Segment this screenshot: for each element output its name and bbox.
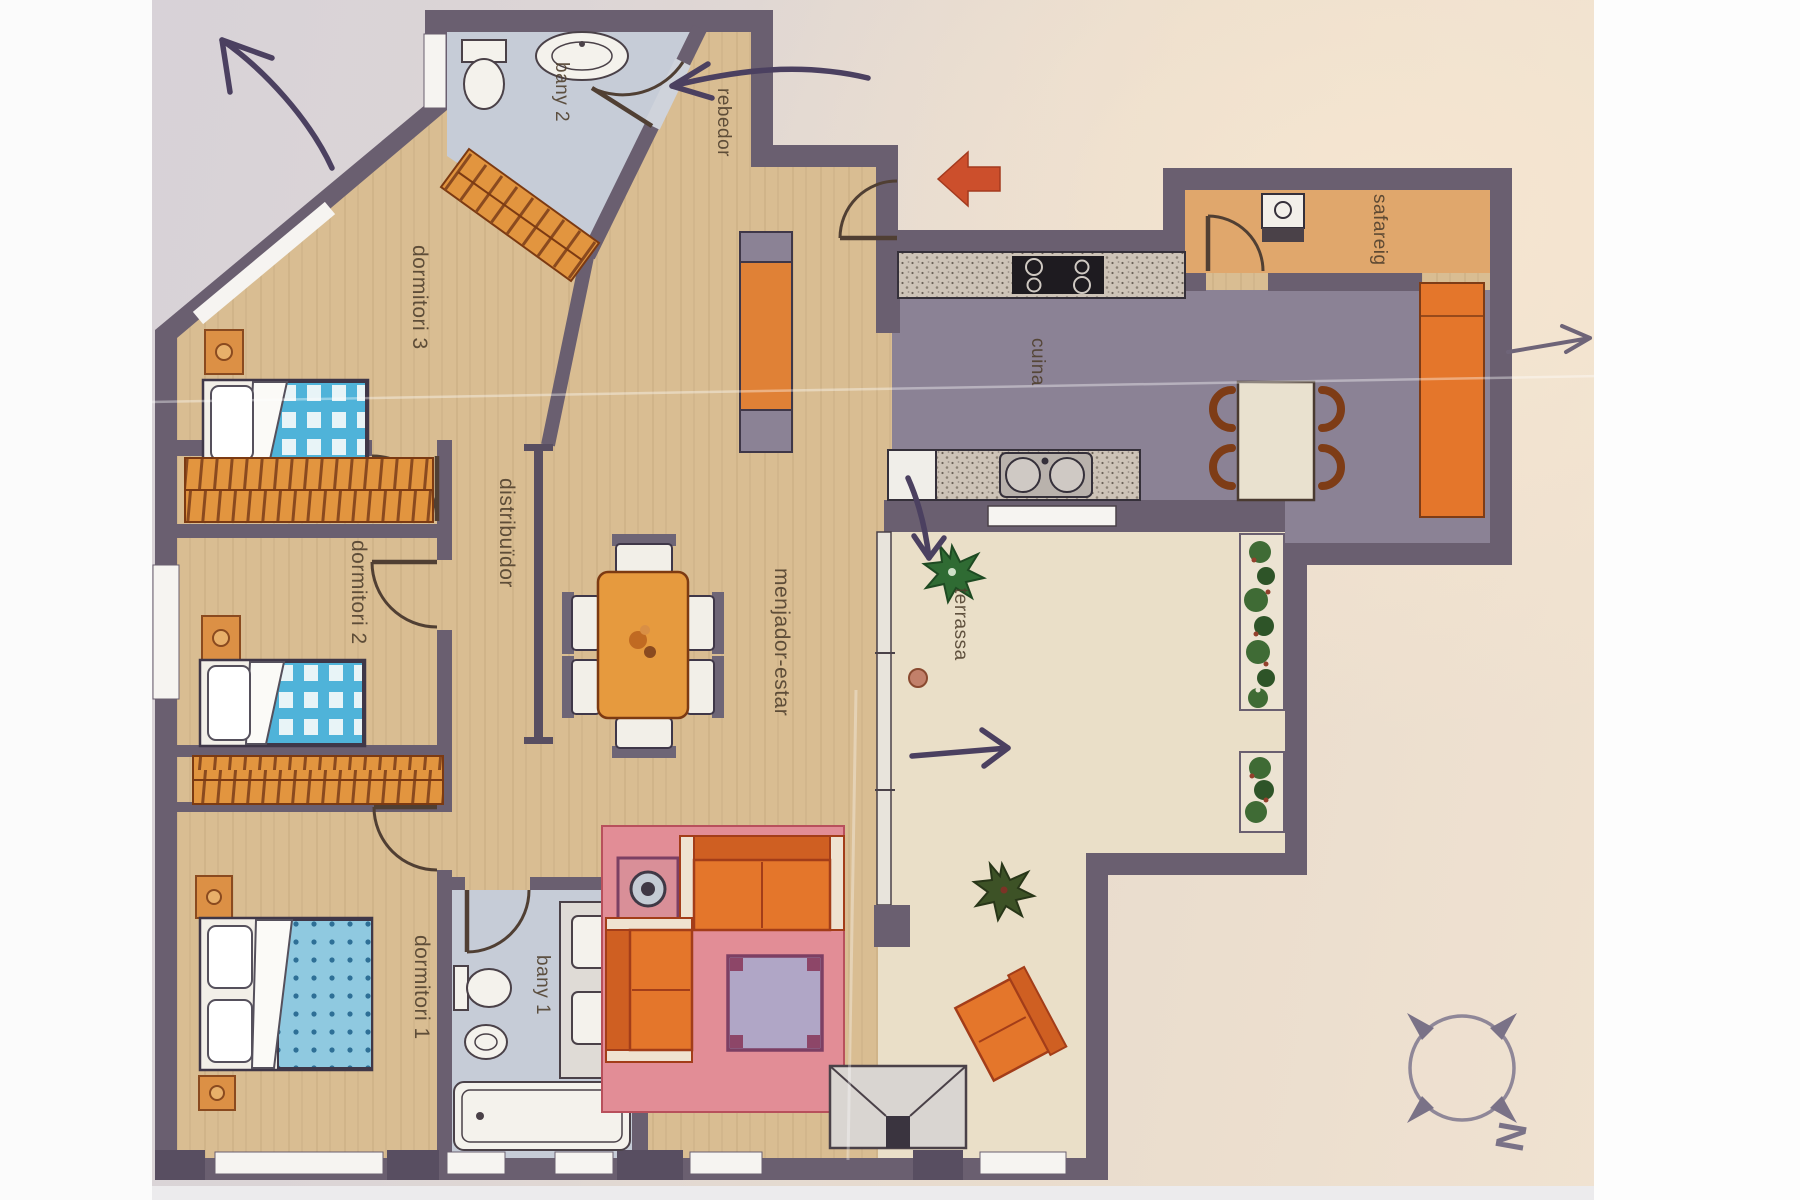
room-label-dormitori-1: dormitori 1: [410, 935, 433, 1040]
flower-box: [1240, 534, 1284, 710]
washing-machine-icon: [1262, 194, 1304, 228]
safareig-fixtures: [1262, 194, 1304, 242]
sofa-small: [606, 918, 692, 1062]
room-label-dormitori-2: dormitori 2: [347, 540, 370, 645]
sink-icon: [536, 32, 628, 80]
corridor-partition: [534, 444, 543, 744]
room-label-rebedor: rebedor: [713, 88, 734, 157]
ink-arrow-up-left: [222, 40, 332, 168]
flower-box: [1240, 752, 1284, 832]
lamp-icon: [213, 630, 229, 646]
toilet-icon: [464, 59, 504, 109]
kitchen-pass-window: [988, 506, 1116, 526]
room-label-distribuidor: distribuïdor: [495, 478, 518, 588]
single-bed: [200, 660, 365, 746]
double-bed: [200, 918, 372, 1070]
ink-arrow-right-edge: [1508, 326, 1590, 352]
terrace-glass-wall: [877, 532, 891, 905]
lamp-icon: [210, 1086, 224, 1100]
sink-basin: [1006, 458, 1040, 492]
wall-pillar: [874, 905, 910, 947]
floor-drain: [909, 669, 927, 687]
tall-cabinet: [1420, 283, 1484, 517]
coffee-table: [728, 956, 822, 1050]
safareig-floor: [1185, 190, 1490, 273]
floor-plan-drawing: bany 2 dormitori 3 dormitori 2 dormitori…: [0, 0, 1800, 1200]
bidet-icon: [465, 1025, 507, 1059]
kitchen-table: [1238, 382, 1314, 500]
paper-margin-bottom: [152, 1186, 1594, 1200]
room-label-bany-2: bany 2: [551, 62, 572, 122]
room-label-terrassa: terrassa: [950, 588, 971, 661]
pillow: [208, 926, 252, 988]
toilet-icon: [467, 969, 511, 1007]
lamp-icon: [216, 344, 232, 360]
pillow: [208, 666, 250, 740]
single-bed: [203, 380, 368, 466]
pillow: [208, 1000, 252, 1062]
entrance-arrow-icon: [938, 152, 1000, 206]
sofa-large: [680, 836, 844, 930]
rebedor-cabinet: [740, 232, 792, 452]
toilet-tank: [454, 966, 468, 1010]
room-label-cuina: cuina: [1027, 338, 1048, 386]
terrassa-floor: [878, 532, 1285, 1158]
room-label-menjador-estar: menjador-estar: [770, 568, 793, 716]
wardrobe-top: [193, 756, 443, 804]
sink-basin: [1050, 458, 1084, 492]
pillow: [211, 386, 253, 460]
room-label-safareig: safareig: [1369, 194, 1390, 266]
room-label-bany-1: bany 1: [532, 955, 553, 1015]
compass-north-letter: N: [1486, 1118, 1534, 1154]
wardrobe-top: [185, 458, 433, 522]
paper-margin-right: [1594, 0, 1800, 1200]
paper-margin-left: [0, 0, 152, 1200]
room-label-dormitori-3: dormitori 3: [408, 245, 431, 350]
compass-rose: N: [1407, 1013, 1534, 1155]
lamp-icon: [207, 890, 221, 904]
